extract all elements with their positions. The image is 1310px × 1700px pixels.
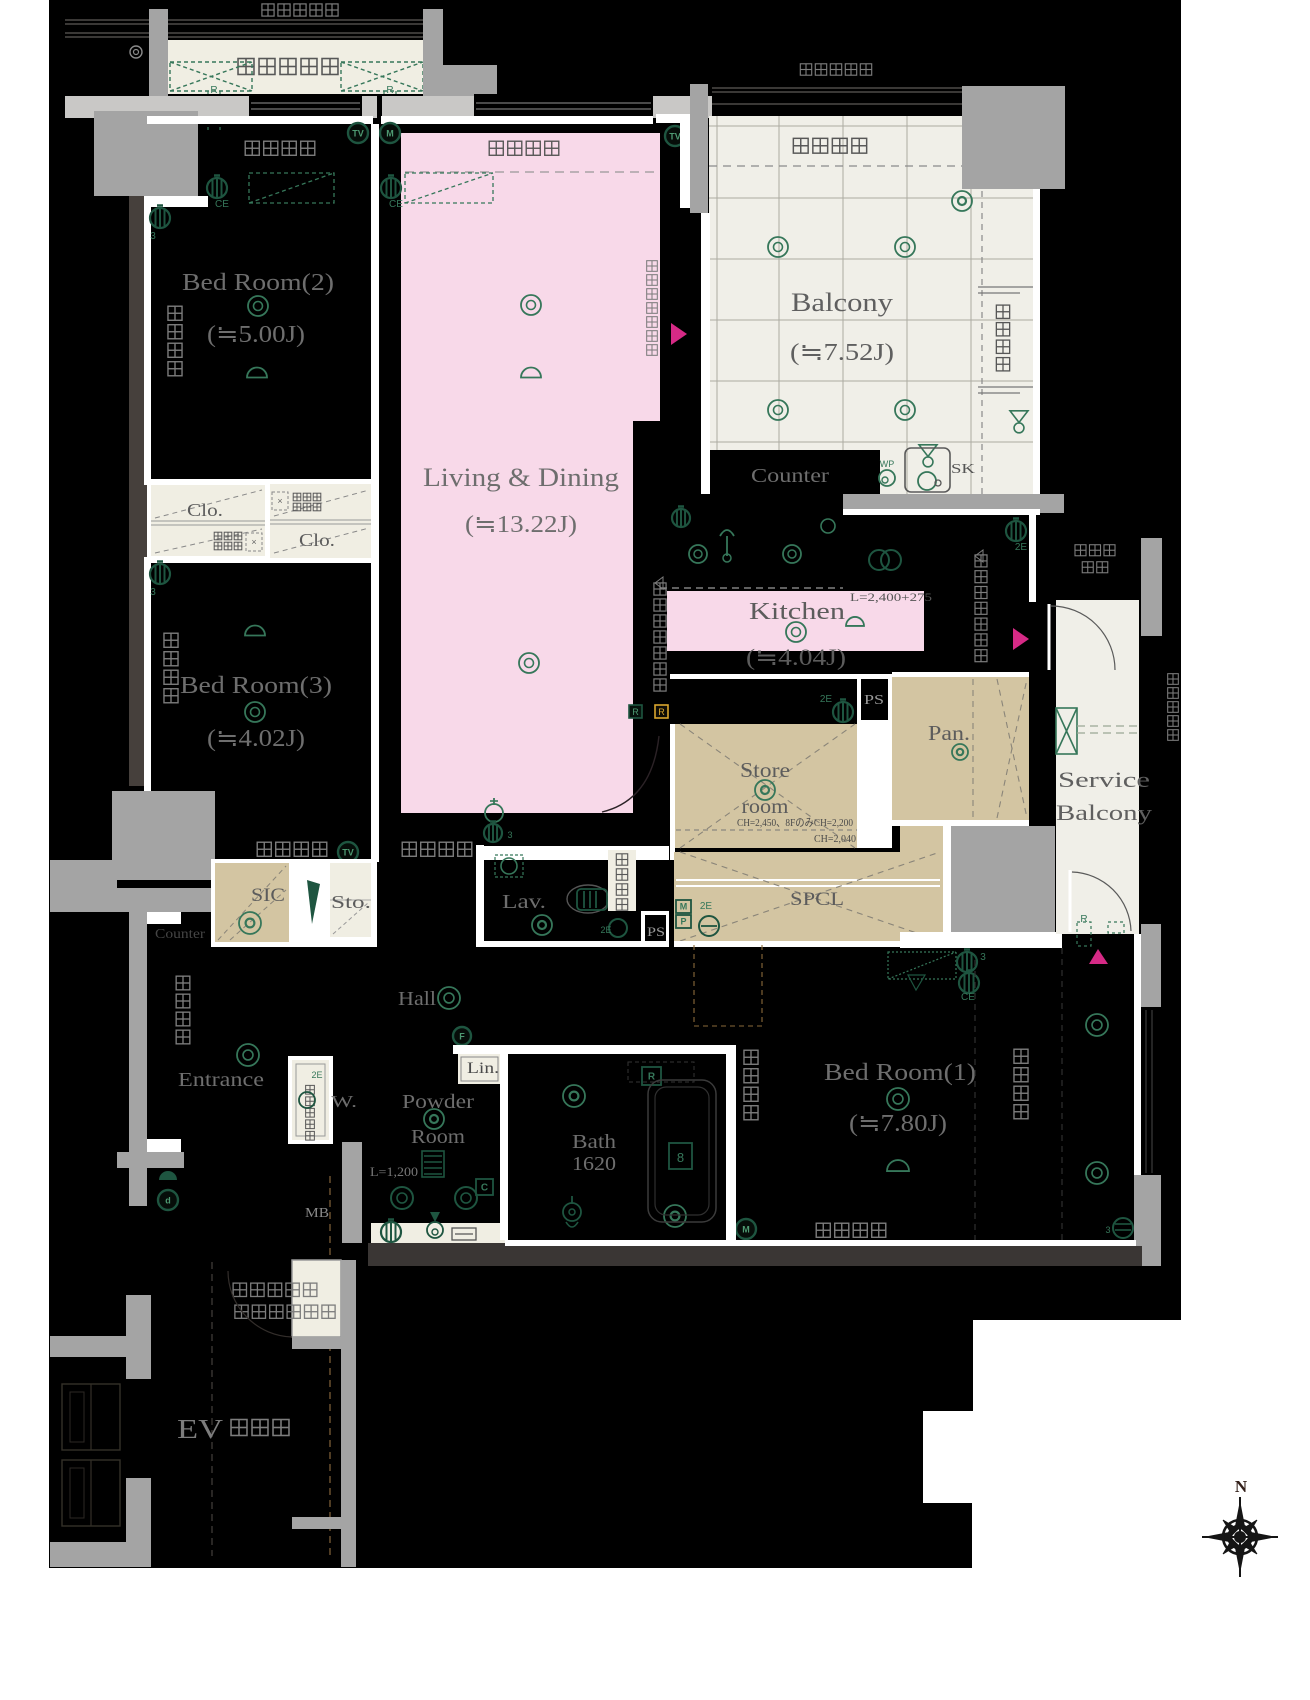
svg-text:×: × xyxy=(251,537,256,547)
svg-text:Clo.: Clo. xyxy=(299,530,335,550)
svg-text:Kitchen: Kitchen xyxy=(749,599,845,625)
svg-text:SIC: SIC xyxy=(251,885,285,906)
svg-text:Living & Dining: Living & Dining xyxy=(423,463,619,492)
svg-text:(≒7.80J): (≒7.80J) xyxy=(849,1111,947,1137)
svg-text:CH=2,040: CH=2,040 xyxy=(814,833,856,845)
svg-text:3: 3 xyxy=(980,952,986,963)
svg-text:L=2,400+275: L=2,400+275 xyxy=(850,590,932,604)
svg-text:2E: 2E xyxy=(1015,542,1028,553)
svg-text:(≒5.00J): (≒5.00J) xyxy=(207,322,305,348)
svg-text:Lin.: Lin. xyxy=(467,1060,499,1077)
svg-text:2E: 2E xyxy=(700,901,713,912)
svg-text:Balcony: Balcony xyxy=(791,288,893,317)
svg-text:PS: PS xyxy=(647,924,665,939)
svg-text:3: 3 xyxy=(1105,1225,1110,1235)
svg-text:3: 3 xyxy=(150,231,156,242)
svg-text:TV: TV xyxy=(352,129,364,139)
svg-text:P: P xyxy=(680,917,686,927)
svg-text:Counter: Counter xyxy=(751,465,829,487)
svg-text:EV: EV xyxy=(177,1414,224,1444)
svg-text:CE: CE xyxy=(215,199,229,210)
svg-text:R: R xyxy=(658,707,665,717)
svg-text:CH=2,450、8FのみCH=2,200: CH=2,450、8FのみCH=2,200 xyxy=(737,816,853,829)
svg-text:TV: TV xyxy=(669,132,681,142)
svg-text:Pan.: Pan. xyxy=(928,721,970,745)
svg-text:1620: 1620 xyxy=(572,1153,616,1175)
svg-text:Lav.: Lav. xyxy=(502,891,546,913)
svg-text:Balcony: Balcony xyxy=(1056,800,1152,825)
svg-text:CE: CE xyxy=(961,992,975,1003)
svg-text:MB: MB xyxy=(305,1206,329,1221)
svg-text:Room: Room xyxy=(411,1126,465,1148)
svg-text:R: R xyxy=(210,85,217,96)
svg-text:Counter: Counter xyxy=(155,927,205,942)
svg-text:L=1,200: L=1,200 xyxy=(370,1164,418,1179)
svg-text:Clo.: Clo. xyxy=(187,500,223,520)
svg-text:R: R xyxy=(1080,914,1087,925)
svg-text:R: R xyxy=(386,85,393,96)
svg-text:(≒4.04J): (≒4.04J) xyxy=(746,645,846,670)
svg-text:Store: Store xyxy=(740,758,790,782)
svg-text:R: R xyxy=(632,707,639,717)
svg-text:Bed Room(1): Bed Room(1) xyxy=(824,1060,976,1086)
svg-text:Bed Room(3): Bed Room(3) xyxy=(180,673,332,699)
svg-text:C: C xyxy=(481,1183,488,1194)
svg-text:F: F xyxy=(459,1032,465,1042)
svg-text:3: 3 xyxy=(507,830,512,840)
svg-text:Sto.: Sto. xyxy=(331,892,371,912)
svg-text:2E: 2E xyxy=(820,694,833,705)
svg-text:Service: Service xyxy=(1058,767,1150,792)
svg-text:2E: 2E xyxy=(311,1070,322,1080)
svg-text:(≒13.22J): (≒13.22J) xyxy=(465,512,577,538)
svg-text:M: M xyxy=(742,1225,750,1235)
svg-text:(≒7.52J): (≒7.52J) xyxy=(790,340,894,366)
svg-text:CE: CE xyxy=(389,199,403,210)
svg-text:×: × xyxy=(277,496,282,506)
svg-text:PS: PS xyxy=(864,693,884,708)
svg-text:Bath: Bath xyxy=(572,1131,616,1153)
svg-text:Hall: Hall xyxy=(398,988,436,1010)
svg-text:Entrance: Entrance xyxy=(178,1069,264,1091)
svg-text:SK: SK xyxy=(951,462,975,477)
svg-text:M: M xyxy=(386,129,394,139)
svg-text:M: M xyxy=(680,902,688,912)
svg-text:W.: W. xyxy=(331,1092,357,1111)
svg-text:8: 8 xyxy=(677,1150,684,1165)
svg-text:room: room xyxy=(742,794,789,818)
svg-text:Bed Room(2): Bed Room(2) xyxy=(182,270,334,296)
svg-text:TV: TV xyxy=(342,848,354,858)
svg-text:N: N xyxy=(1235,1477,1248,1496)
svg-text:SPCL: SPCL xyxy=(790,889,844,910)
svg-text:3: 3 xyxy=(150,587,156,598)
svg-text:d: d xyxy=(165,1196,171,1206)
svg-text:2E: 2E xyxy=(600,925,611,935)
svg-text:(≒4.02J): (≒4.02J) xyxy=(207,726,305,752)
svg-text:WP: WP xyxy=(880,459,895,469)
svg-text:R: R xyxy=(648,1072,656,1083)
